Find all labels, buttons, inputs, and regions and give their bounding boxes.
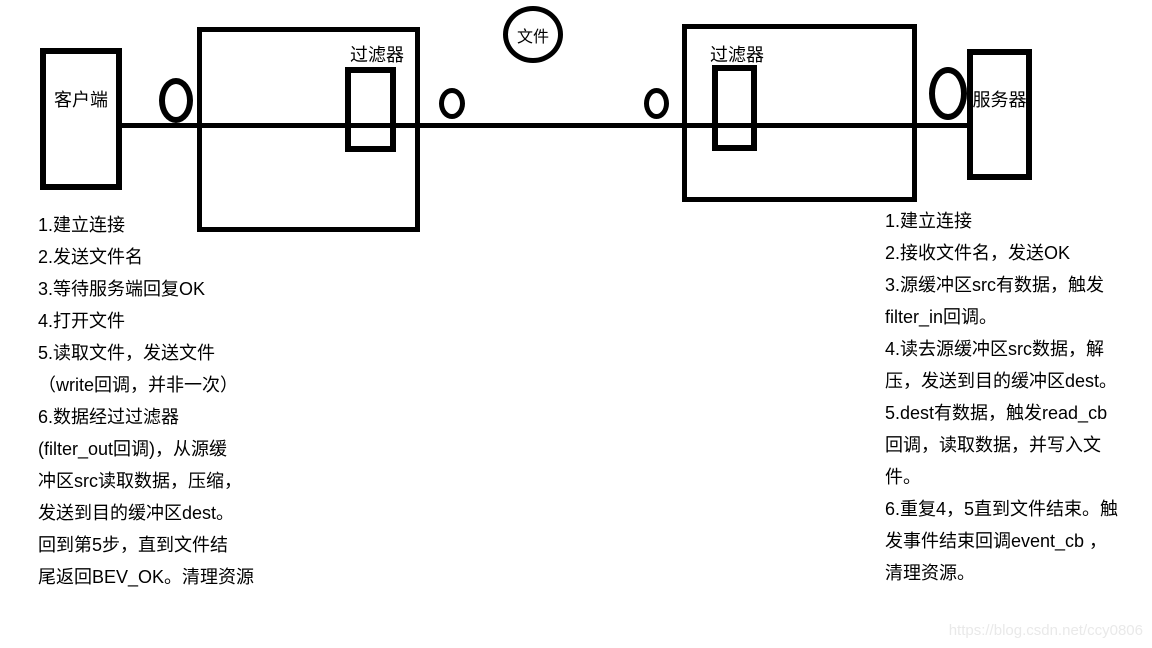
file-label: 文件 xyxy=(503,23,563,47)
step-line: 2.接收文件名，发送OK xyxy=(885,237,1118,269)
client-box xyxy=(40,48,122,190)
step-line: 6.数据经过过滤器 xyxy=(38,401,254,433)
step-line: 回调，读取数据，并写入文 xyxy=(885,429,1118,461)
connector-circle-mid-right xyxy=(644,88,669,119)
step-line: （write回调，并非一次） xyxy=(38,369,254,401)
server-steps-list: 1.建立连接2.接收文件名，发送OK3.源缓冲区src有数据，触发filter_… xyxy=(885,205,1118,589)
step-line: 3.源缓冲区src有数据，触发 xyxy=(885,269,1118,301)
server-label: 服务器 xyxy=(967,86,1032,112)
step-line: 压，发送到目的缓冲区dest。 xyxy=(885,365,1118,397)
step-line: 发送到目的缓冲区dest。 xyxy=(38,497,254,529)
step-line: 6.重复4，5直到文件结束。触 xyxy=(885,493,1118,525)
step-line: 5.dest有数据，触发read_cb xyxy=(885,397,1118,429)
server-box xyxy=(967,49,1032,180)
step-line: 4.读去源缓冲区src数据，解 xyxy=(885,333,1118,365)
step-line: 5.读取文件，发送文件 xyxy=(38,337,254,369)
filter-right-label: 过滤器 xyxy=(710,41,764,67)
step-line: 冲区src读取数据，压缩， xyxy=(38,465,254,497)
filter-right-inner-rect xyxy=(712,65,757,151)
connector-circle-client xyxy=(159,78,193,123)
filter-left-label: 过滤器 xyxy=(350,41,404,67)
step-line: 发事件结束回调event_cb ， xyxy=(885,525,1118,557)
step-line: 件。 xyxy=(885,461,1118,493)
step-line: 4.打开文件 xyxy=(38,305,254,337)
client-steps-list: 1.建立连接2.发送文件名3.等待服务端回复OK4.打开文件5.读取文件，发送文… xyxy=(38,209,254,593)
connector-circle-mid-left xyxy=(439,88,465,119)
step-line: 1.建立连接 xyxy=(885,205,1118,237)
step-line: filter_in回调。 xyxy=(885,301,1118,333)
connector-circle-server xyxy=(929,67,967,120)
filter-left-inner-rect xyxy=(345,67,396,152)
step-line: (filter_out回调)，从源缓 xyxy=(38,433,254,465)
client-label: 客户端 xyxy=(40,86,122,112)
step-line: 1.建立连接 xyxy=(38,209,254,241)
step-line: 尾返回BEV_OK。清理资源 xyxy=(38,561,254,593)
step-line: 回到第5步，直到文件结 xyxy=(38,529,254,561)
step-line: 3.等待服务端回复OK xyxy=(38,273,254,305)
watermark: https://blog.csdn.net/ccy0806 xyxy=(949,622,1143,639)
step-line: 2.发送文件名 xyxy=(38,241,254,273)
step-line: 清理资源。 xyxy=(885,557,1118,589)
